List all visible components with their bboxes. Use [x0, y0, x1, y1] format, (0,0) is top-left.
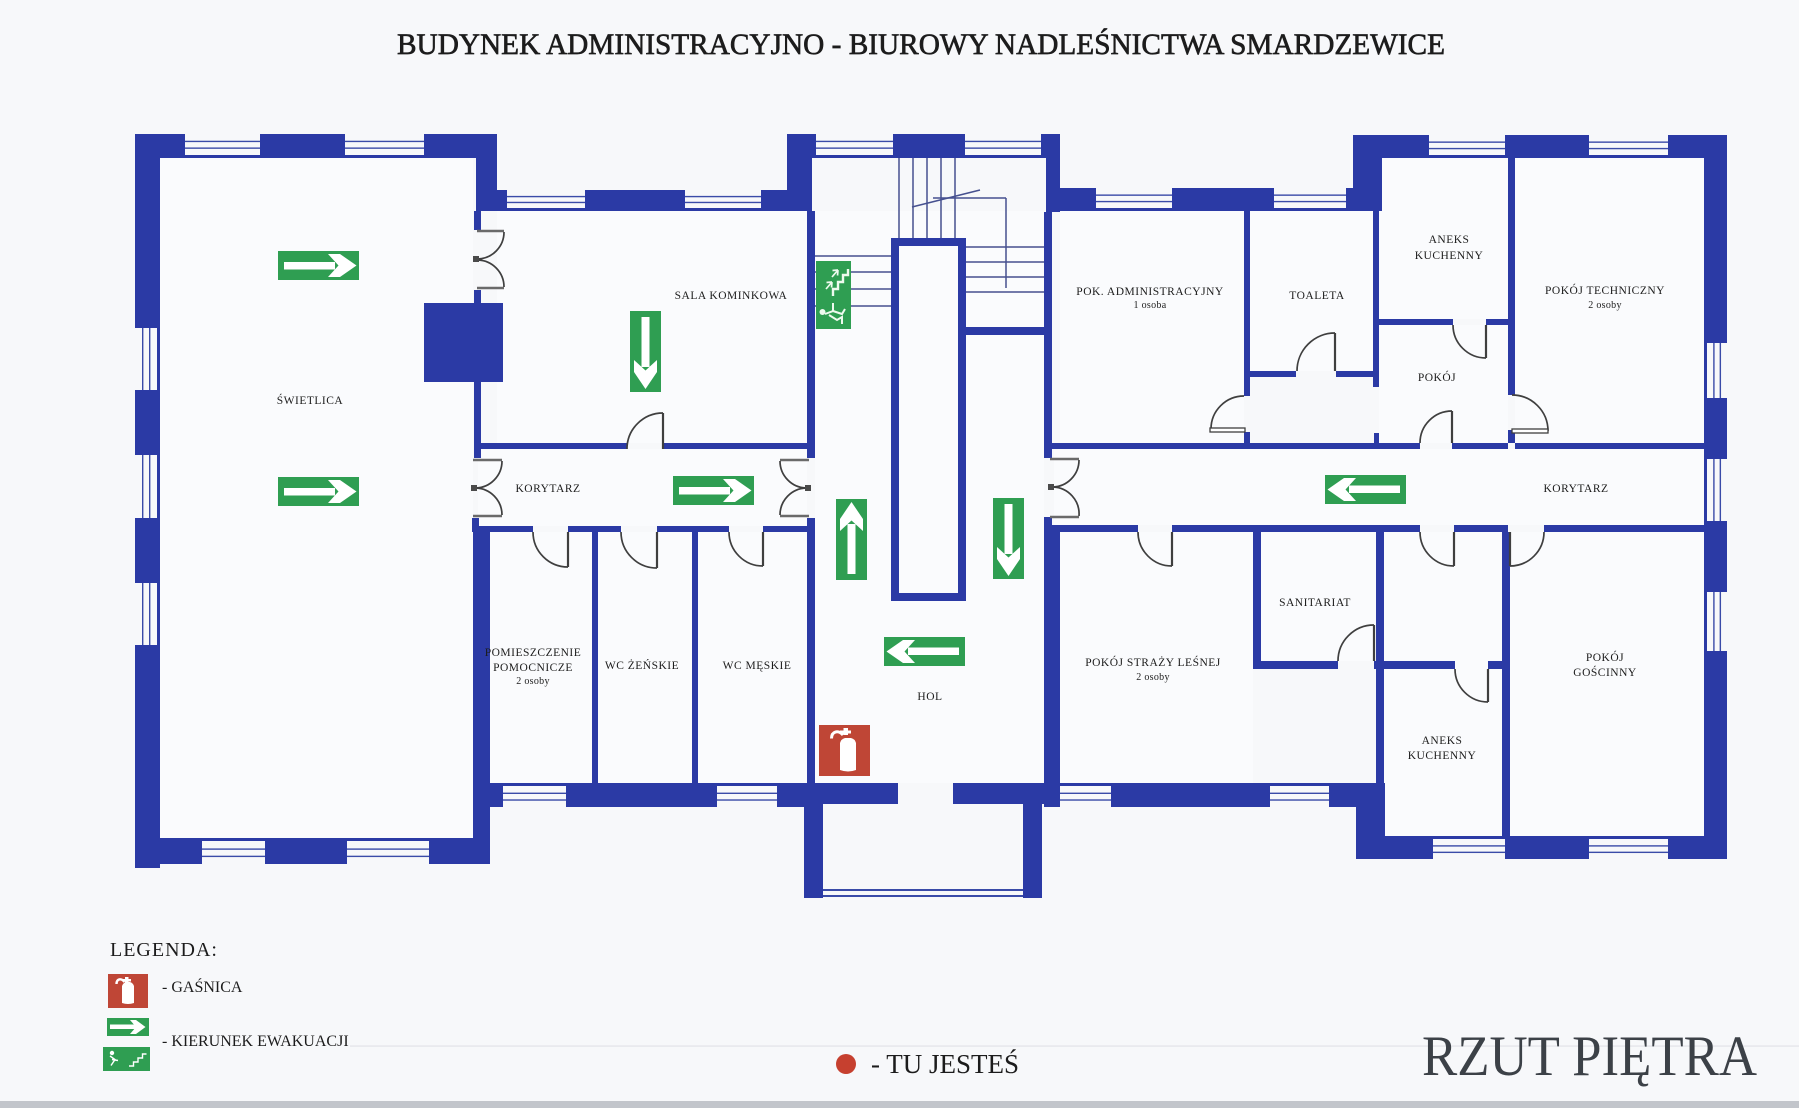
svg-text:BUDYNEK ADMINISTRACYJNO - BIUR: BUDYNEK ADMINISTRACYJNO - BIUROWY NADLEŚ…: [397, 28, 1445, 61]
svg-text:WC MĘSKIE: WC MĘSKIE: [723, 660, 792, 672]
svg-text:WC ŻEŃSKIE: WC ŻEŃSKIE: [605, 658, 679, 672]
svg-text:POKÓJ: POKÓJ: [1586, 650, 1624, 664]
svg-text:ŚWIETLICA: ŚWIETLICA: [277, 393, 344, 407]
svg-text:ANEKS: ANEKS: [1429, 234, 1470, 246]
svg-text:- GAŚNICA: - GAŚNICA: [162, 977, 243, 996]
svg-text:KUCHENNY: KUCHENNY: [1415, 250, 1484, 262]
svg-text:POKÓJ TECHNICZNY: POKÓJ TECHNICZNY: [1545, 283, 1665, 297]
svg-text:ANEKS: ANEKS: [1422, 735, 1463, 747]
svg-text:TOALETA: TOALETA: [1289, 290, 1345, 302]
svg-text:- TU JESTEŚ: - TU JESTEŚ: [871, 1049, 1019, 1079]
svg-text:SANITARIAT: SANITARIAT: [1279, 597, 1351, 609]
svg-text:- KIERUNEK EWAKUACJI: - KIERUNEK EWAKUACJI: [162, 1033, 349, 1050]
svg-text:KORYTARZ: KORYTARZ: [515, 483, 580, 495]
svg-text:POK. ADMINISTRACYJNY: POK. ADMINISTRACYJNY: [1076, 286, 1224, 298]
svg-text:POKÓJ: POKÓJ: [1418, 370, 1456, 384]
svg-text:LEGENDA:: LEGENDA:: [110, 939, 218, 961]
svg-text:POKÓJ STRAŻY LEŚNEJ: POKÓJ STRAŻY LEŚNEJ: [1085, 655, 1221, 669]
svg-text:KORYTARZ: KORYTARZ: [1543, 483, 1608, 495]
svg-text:GOŚCINNY: GOŚCINNY: [1573, 665, 1637, 679]
svg-text:2 osoby: 2 osoby: [1136, 672, 1170, 683]
svg-text:1 osoba: 1 osoba: [1134, 300, 1167, 311]
svg-text:2 osoby: 2 osoby: [1588, 300, 1622, 311]
svg-text:HOL: HOL: [917, 691, 942, 703]
svg-text:POMOCNICZE: POMOCNICZE: [493, 662, 573, 674]
svg-text:KUCHENNY: KUCHENNY: [1408, 750, 1477, 762]
svg-text:2 osoby: 2 osoby: [516, 676, 550, 687]
svg-text:POMIESZCZENIE: POMIESZCZENIE: [485, 647, 582, 659]
svg-text:RZUT PIĘTRA: RZUT PIĘTRA: [1422, 1025, 1757, 1088]
svg-text:SALA KOMINKOWA: SALA KOMINKOWA: [675, 290, 788, 302]
